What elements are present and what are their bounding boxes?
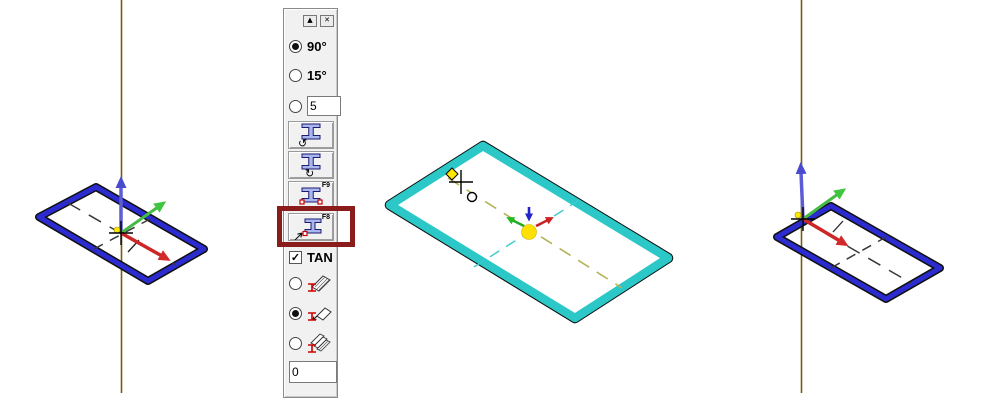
right-3d-view[interactable]: [745, 0, 988, 406]
origin-point: [795, 212, 801, 218]
radio-profile-fold[interactable]: [289, 307, 302, 320]
ibeam-profile-icon: [305, 219, 321, 233]
snap-point-circle: [468, 193, 477, 202]
rotate-cw-icon: ↻: [305, 167, 314, 178]
f8-label: F8: [322, 214, 330, 221]
radio-profile-multi-beam[interactable]: [289, 337, 302, 350]
endpoint-marker-right-icon: [318, 200, 322, 204]
tan-checkbox[interactable]: ✓: [289, 251, 302, 264]
ibeam-profile-icon: [302, 188, 320, 202]
rotate-profile-ccw-button[interactable]: ↺: [288, 121, 334, 149]
crosshair: [109, 221, 133, 245]
angle-15-label: 15°: [307, 68, 327, 83]
close-icon[interactable]: ✕: [320, 15, 334, 27]
placement-option-2[interactable]: [289, 301, 335, 325]
radio-90deg[interactable]: [289, 40, 302, 53]
radio-custom-angle[interactable]: [289, 100, 302, 113]
tangent-option[interactable]: ✓ TAN: [289, 249, 333, 265]
angle-option-15[interactable]: 15°: [289, 67, 327, 83]
radio-15deg[interactable]: [289, 69, 302, 82]
center-3d-view[interactable]: [378, 128, 702, 332]
rotate-ccw-icon: ↺: [298, 137, 307, 148]
profile-endpoints-button[interactable]: F9: [288, 181, 334, 209]
cad-workspace: ▲ ✕ 90° 15° ↺ ↻ F9: [0, 0, 988, 406]
tan-label: TAN: [307, 250, 333, 265]
collapse-icon[interactable]: ▲: [303, 15, 317, 27]
profile-single-point-button[interactable]: F8: [288, 213, 334, 241]
rotate-profile-cw-button[interactable]: ↻: [288, 151, 334, 179]
point-marker-icon: [303, 232, 307, 236]
move-arrow-icon: [295, 233, 302, 240]
x-axis-arrow: [121, 233, 162, 256]
f9-label: F9: [322, 182, 330, 189]
radio-profile-along-beam[interactable]: [289, 277, 302, 290]
angle-90-label: 90°: [307, 39, 327, 54]
beam-hatched-icon: [307, 271, 335, 295]
tick-mark: [833, 221, 843, 232]
custom-angle-input[interactable]: [307, 96, 341, 116]
beam-stack-hatched-icon: [307, 331, 335, 355]
profile-origin-point: [522, 225, 537, 240]
profile-options-palette: ▲ ✕ 90° 15° ↺ ↻ F9: [283, 8, 338, 398]
left-3d-view[interactable]: [0, 0, 250, 406]
placement-option-1[interactable]: [289, 271, 335, 295]
placement-option-3[interactable]: [289, 331, 335, 355]
offset-input[interactable]: [289, 361, 337, 383]
beam-fold-icon: [307, 301, 335, 325]
angle-option-custom[interactable]: [289, 96, 341, 116]
endpoint-marker-left-icon: [300, 200, 304, 204]
angle-option-90[interactable]: 90°: [289, 38, 327, 54]
origin-point: [114, 227, 120, 233]
palette-titlebar[interactable]: ▲ ✕: [284, 9, 337, 29]
